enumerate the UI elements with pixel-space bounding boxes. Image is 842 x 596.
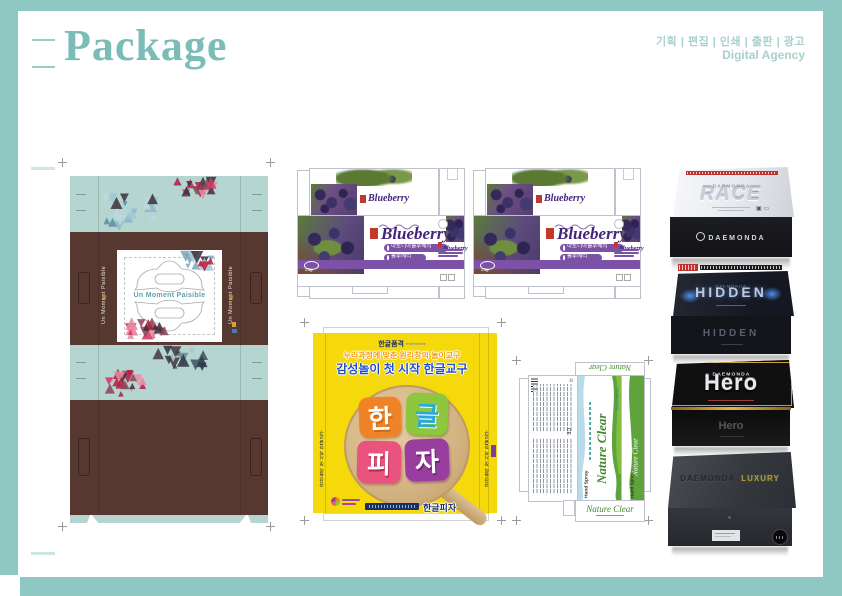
hidden-red-tag xyxy=(678,264,698,271)
race-name: RACE xyxy=(668,184,794,206)
moment-dieline: Un Moment Paisible ♛ Un Moment Paisible … xyxy=(70,176,268,523)
blueberry-main-face: Blueberry 아로니아블루베리 블루베리 Blueberry 25g xyxy=(473,215,641,287)
side-logo-purple xyxy=(491,445,496,457)
luxury-label xyxy=(712,530,740,541)
hero-top-face: DAEMONDA Hero xyxy=(668,360,794,408)
blueberry-top-flap: Blueberry xyxy=(485,168,615,217)
hang-hole xyxy=(614,219,624,229)
moment-side-brand-right: Un Moment Paisible xyxy=(228,240,234,324)
cert-mark-blue xyxy=(232,329,237,333)
nc-ingredients-panel: ♻ CE xyxy=(528,375,579,502)
race-front-face: DAEMONDA xyxy=(670,217,792,257)
nc-right-title: Nature Clear xyxy=(630,386,640,476)
moment-bottom-stub-right xyxy=(248,515,268,523)
moment-bottom-band xyxy=(70,400,268,515)
frame-right xyxy=(823,11,842,596)
cert-mark-gold xyxy=(232,322,236,327)
hidden-top-ticks xyxy=(700,265,782,270)
triangle-cluster xyxy=(117,316,169,347)
moment-bottom-stub-left xyxy=(70,515,90,523)
nc-right-face: Nature Clear Hand Spray xyxy=(621,375,645,502)
luxury-brand: DAEMONDA xyxy=(680,474,735,483)
triangle-cluster xyxy=(152,345,210,376)
luxury-dot xyxy=(728,516,731,519)
title-mark-line1 xyxy=(32,39,55,41)
luxury-brand-row: DAEMONDA LUXURY xyxy=(664,474,796,483)
nc-title-vertical: Nature Clear xyxy=(594,384,610,484)
blueberry-dieline-2: Blueberry Blueberry 아로니아블루베리 블루베리 Bluebe… xyxy=(472,167,647,298)
nc-main-face: Nature Clear Hand Spray BLOOMING xyxy=(577,375,623,502)
nc-side-label: Hand Spray xyxy=(581,468,591,498)
product-box-luxury: DAEMONDA LUXURY xyxy=(664,452,796,556)
moment-bottom-strip xyxy=(92,515,246,523)
weight-badge: 25g xyxy=(304,261,319,270)
purple-stripe: 25g xyxy=(298,260,464,269)
nc-logo: BLOOMING xyxy=(614,380,621,410)
ce-mark: CE xyxy=(565,428,571,435)
product-box-race: DAEMONDA RACE ▣ ▭ DAEMONDA xyxy=(668,167,794,271)
blueberry-title-small: Blueberry xyxy=(544,193,585,204)
triangle-cluster xyxy=(179,250,219,277)
natureclear-dieline: Nature Clear ♻ CE Nature Clear Hand Spra… xyxy=(519,362,649,524)
nc-bottom-flap: Nature Clear xyxy=(575,500,645,522)
nc-subtitle-line xyxy=(589,402,591,462)
nc-bottom-title: Nature Clear xyxy=(576,504,644,514)
weight-badge: 25g xyxy=(480,261,495,270)
luxury-top-face: DAEMONDA LUXURY xyxy=(664,452,796,508)
hidden-front-logo: HIDDEN xyxy=(671,328,791,339)
bottom-chip xyxy=(365,503,419,510)
hidden-front-face: HIDDEN xyxy=(671,316,791,354)
blueberry-main-face: Blueberry 아로니아블루베리 블루베리 Blueberry 25g xyxy=(297,215,465,287)
pizza-product-name: 한글피자 xyxy=(423,501,456,514)
pizza-tile-1: 한 xyxy=(358,396,401,437)
nc-right-side-label: Hand Spray xyxy=(623,472,641,498)
pizza-line2: 감성놀이 첫 시작 한글교구 xyxy=(325,360,479,377)
pizza-tile-4: 자 xyxy=(404,438,449,482)
blueberry-dieline: Blueberry Blueberry 아로니아블루베리 블루베리 Bluebe… xyxy=(296,167,471,298)
luxury-badge xyxy=(772,529,788,545)
header-agency: Digital Agency xyxy=(722,48,805,62)
pizza-tile-2: 글 xyxy=(405,392,448,435)
product-box-hidden: DAEMONDA HIDDEN HIDDEN xyxy=(668,264,794,364)
luxury-name: LUXURY xyxy=(741,474,780,483)
race-red-band xyxy=(686,171,778,175)
checkbox-marks: ▣ ▭ xyxy=(756,205,769,212)
pizza-package: 감성놀이 첫 시작 한글교구 감성놀이 첫 시작 한글교구 한글품격 ▪▪▪▪▪… xyxy=(309,327,501,519)
moment-brand-text: Un Moment Paisible xyxy=(117,292,222,299)
crown-icon: ♛ xyxy=(228,294,234,302)
product-box-hero: DAEMONDA Hero Hero xyxy=(668,360,794,458)
purple-stripe: 25g xyxy=(474,260,640,269)
pizza-side-text-left: 감성놀이 첫 시작 한글교구 xyxy=(315,361,330,487)
nc-top-flap-title: Nature Clear xyxy=(576,363,644,372)
seal-icon xyxy=(360,195,366,203)
seal-icon xyxy=(536,195,542,203)
blueberry-title-small: Blueberry xyxy=(368,193,409,204)
race-front-logo: DAEMONDA xyxy=(670,232,792,242)
pizza-brand: 한글품격 ▪▪▪▪▪▪▪▪ xyxy=(325,339,479,349)
page-title: Package xyxy=(64,20,227,71)
frame-bottom xyxy=(20,577,842,596)
accent-dash-top xyxy=(31,167,55,170)
triangle-cluster xyxy=(100,192,162,237)
triangle-cluster xyxy=(166,176,222,205)
maker-logo xyxy=(331,497,340,506)
frame-top xyxy=(0,0,842,11)
hidden-top-face: DAEMONDA HIDDEN xyxy=(668,271,794,316)
seal-icon xyxy=(370,228,378,239)
moment-side-brand-left: Un Moment Paisible xyxy=(101,240,107,324)
hidden-name: HIDDEN xyxy=(668,284,794,300)
seal-icon xyxy=(438,242,442,247)
triangle-cluster xyxy=(98,368,150,403)
hang-hole xyxy=(438,219,448,229)
luxury-front-face xyxy=(668,508,792,546)
pizza-front-panel: 감성놀이 첫 시작 한글교구 감성놀이 첫 시작 한글교구 한글품격 ▪▪▪▪▪… xyxy=(313,333,497,513)
frame-left xyxy=(0,0,18,575)
crown-icon: ♛ xyxy=(101,294,107,302)
pizza-side-text-right: 감성놀이 첫 시작 한글교구 xyxy=(480,361,495,487)
hero-front-logo: Hero xyxy=(672,420,790,432)
seal-icon xyxy=(546,228,554,239)
header-services: 기획 | 편집 | 인쇄 | 출판 | 광고 xyxy=(656,33,805,49)
hero-front-face: Hero xyxy=(672,410,790,446)
seal-icon xyxy=(614,242,618,247)
accent-dash-bottom xyxy=(31,552,55,555)
title-mark-line2 xyxy=(32,66,55,68)
moment-window: Un Moment Paisible xyxy=(117,250,222,342)
race-top-face: DAEMONDA RACE ▣ ▭ xyxy=(668,167,794,217)
blueberry-top-flap: Blueberry xyxy=(309,168,439,217)
hero-name: Hero xyxy=(668,370,794,396)
pizza-tile-3: 피 xyxy=(357,441,402,484)
